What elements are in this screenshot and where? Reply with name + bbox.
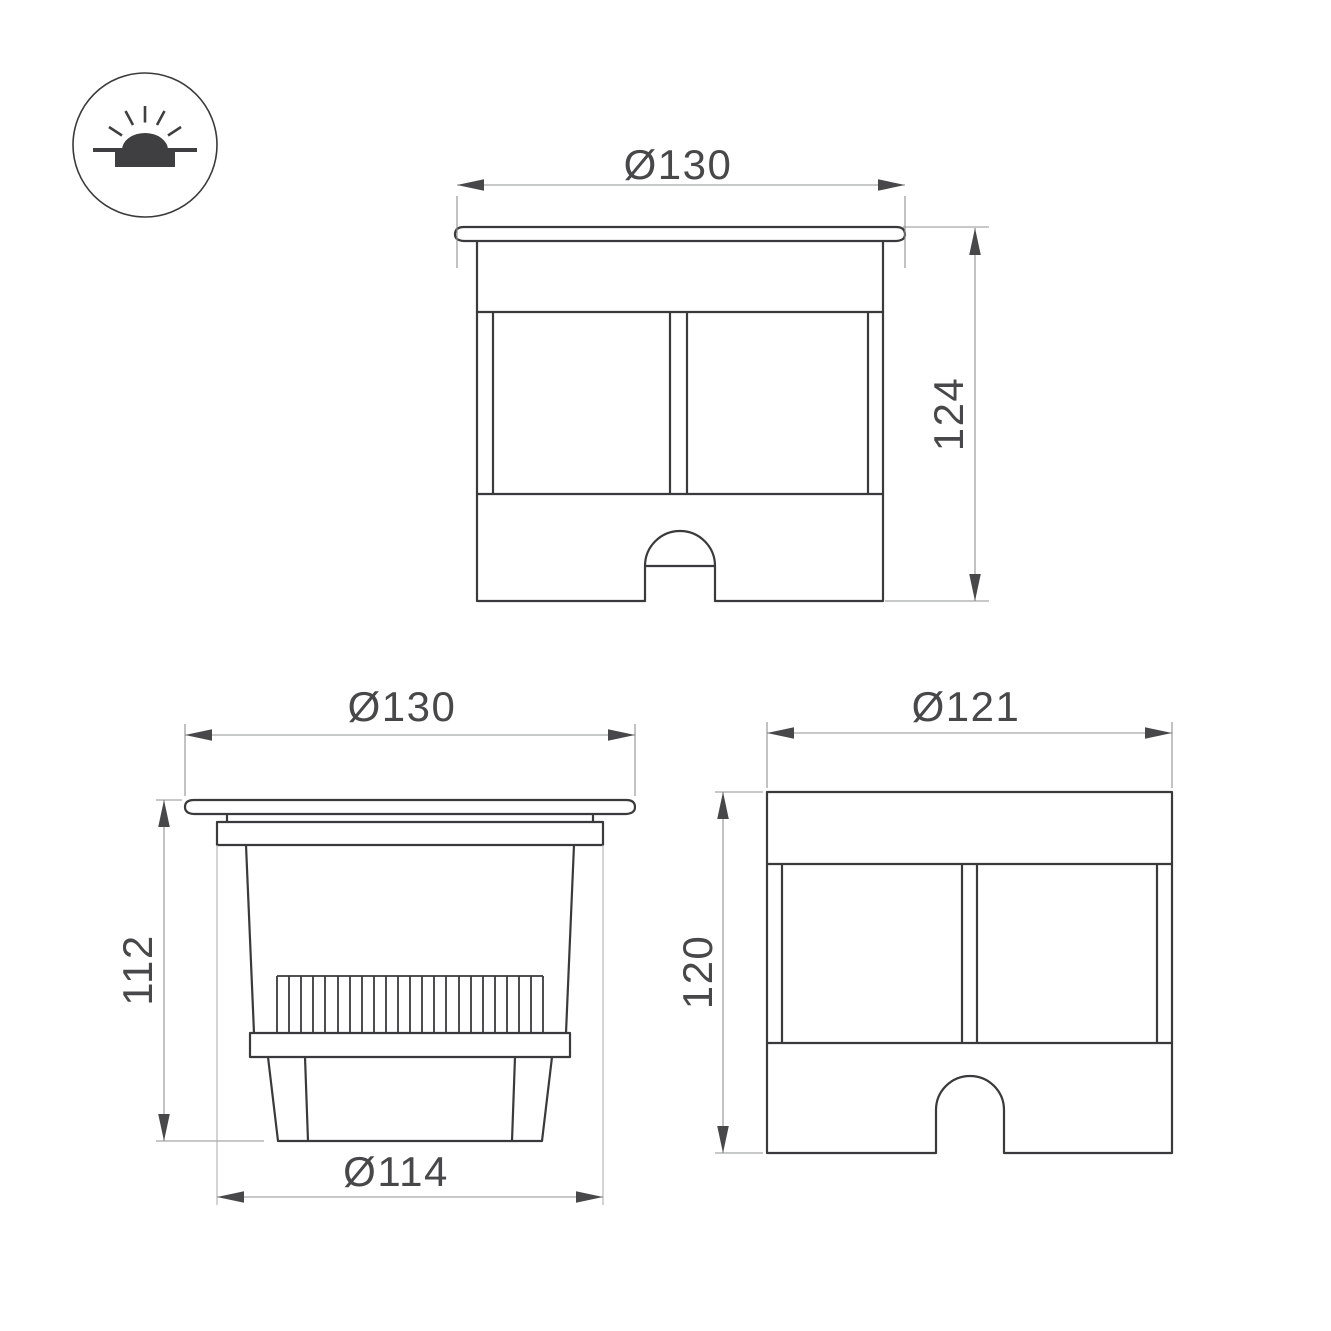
side-flange bbox=[185, 800, 635, 814]
rear-view: Ø121 120 bbox=[674, 683, 1172, 1153]
rear-dimensions: Ø121 120 bbox=[674, 683, 1172, 1153]
rear-width-dimension-lines bbox=[767, 722, 1172, 788]
icon-light-dome bbox=[122, 133, 168, 150]
ground-light-icon bbox=[73, 73, 217, 217]
rear-window-frame-lines bbox=[782, 864, 1157, 1043]
arrow-down bbox=[969, 574, 981, 601]
side-height-dimension-lines bbox=[156, 800, 264, 1141]
arrow-left bbox=[217, 1191, 244, 1203]
arrow-up bbox=[969, 228, 981, 255]
arrow-up bbox=[717, 792, 729, 819]
front-window-frame-lines bbox=[493, 312, 868, 494]
side-top-width-dimension-lines bbox=[185, 724, 635, 796]
rear-width-label: Ø121 bbox=[912, 683, 1021, 730]
icon-light-rays bbox=[109, 106, 181, 136]
side-bottom-width-label: Ø114 bbox=[343, 1148, 449, 1195]
arrow-up bbox=[158, 800, 170, 827]
arrow-right bbox=[878, 179, 905, 191]
rear-height-label: 120 bbox=[674, 935, 721, 1010]
side-height-label: 112 bbox=[114, 934, 161, 1005]
front-body-horizontal-lines bbox=[477, 312, 883, 494]
side-heatsink-fins bbox=[277, 976, 543, 1033]
drawing-canvas: Ø130 124 Ø130 112 Ø114 bbox=[0, 0, 1331, 1331]
front-view: Ø130 124 bbox=[455, 141, 989, 601]
arrow-left bbox=[767, 727, 794, 739]
arrow-left bbox=[185, 729, 212, 741]
arrow-left bbox=[457, 179, 484, 191]
arrow-right bbox=[576, 1191, 603, 1203]
arrow-down bbox=[717, 1126, 729, 1153]
side-top-width-label: Ø130 bbox=[348, 683, 457, 730]
arrow-right bbox=[1145, 727, 1172, 739]
side-mounting-plate bbox=[250, 1033, 570, 1057]
front-height-label: 124 bbox=[925, 377, 972, 452]
icon-recessed-body bbox=[115, 150, 175, 167]
side-base-housing bbox=[268, 1057, 552, 1141]
front-body-outline bbox=[477, 241, 883, 601]
side-collar bbox=[217, 822, 603, 845]
technical-drawing: Ø130 124 Ø130 112 Ø114 bbox=[0, 0, 1331, 1331]
rear-body-outline bbox=[767, 792, 1172, 1153]
rear-body-horizontal-lines bbox=[767, 864, 1172, 1043]
front-flange bbox=[455, 227, 905, 241]
front-dimensions: Ø130 124 bbox=[457, 141, 989, 601]
front-width-label: Ø130 bbox=[624, 141, 733, 188]
side-neck-lines bbox=[227, 814, 593, 822]
arrow-down bbox=[158, 1114, 170, 1141]
rear-height-dimension-lines bbox=[715, 792, 763, 1153]
side-dimensions: Ø130 112 Ø114 bbox=[114, 683, 635, 1205]
side-view: Ø130 112 Ø114 bbox=[114, 683, 635, 1205]
arrow-right bbox=[608, 729, 635, 741]
